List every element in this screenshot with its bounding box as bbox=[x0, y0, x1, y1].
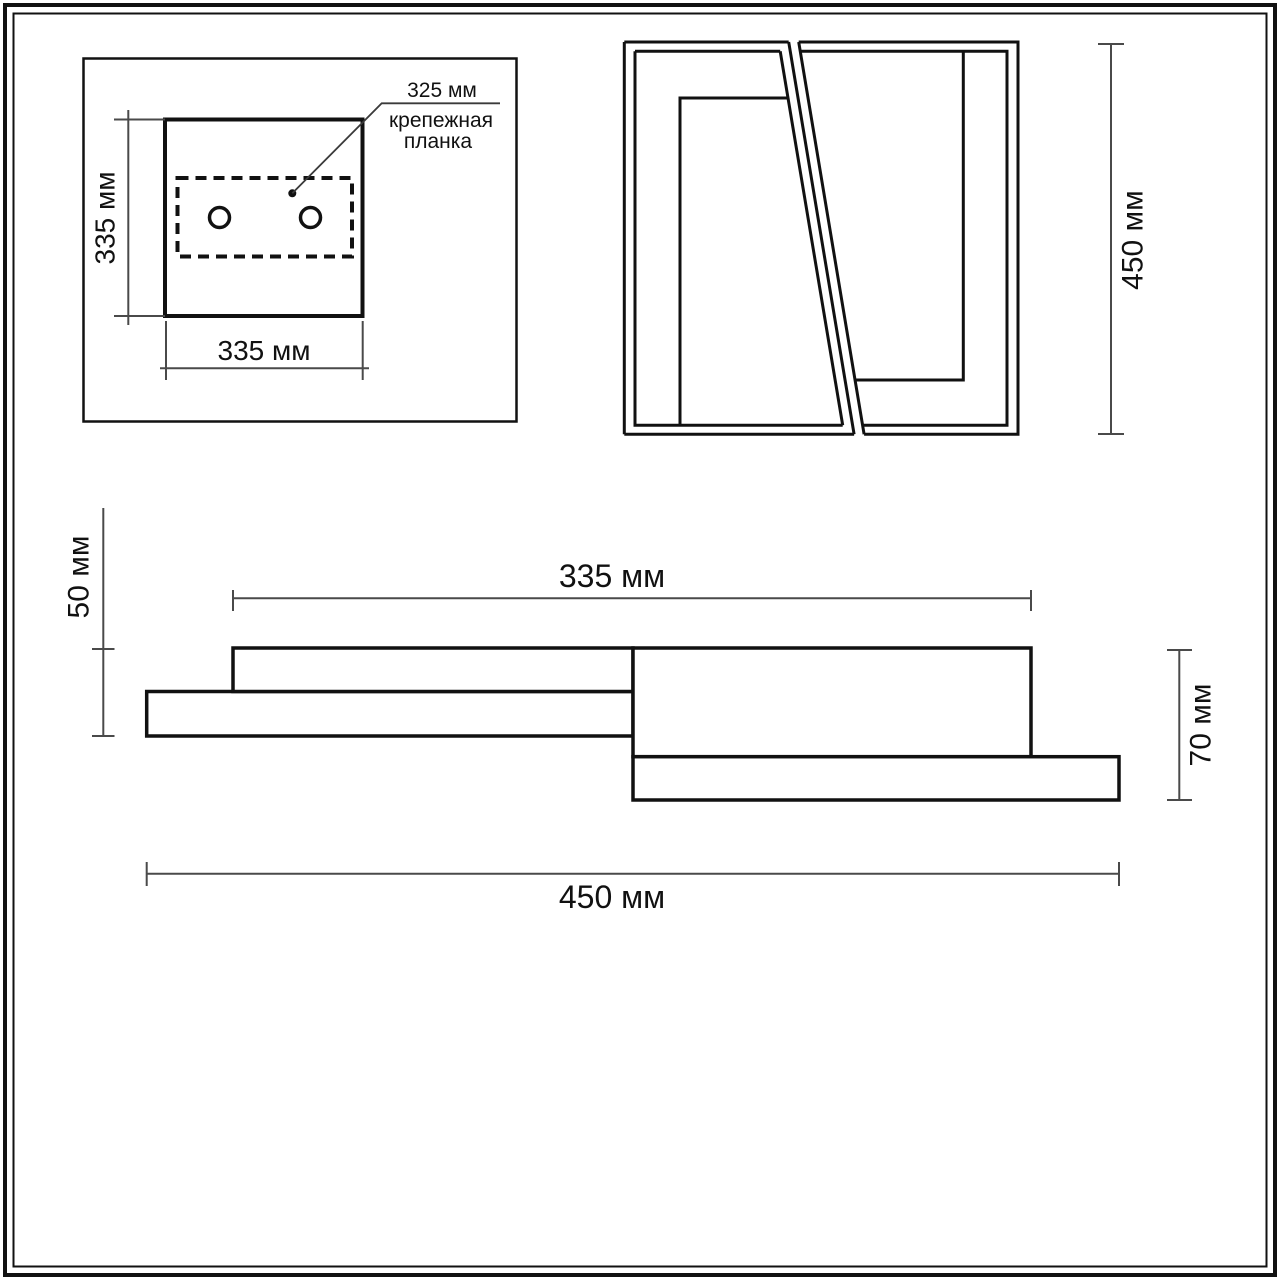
front-right-frame-opening bbox=[855, 51, 963, 380]
side-top-width-dimension: 335 мм bbox=[233, 558, 1031, 611]
front-view: 450 мм bbox=[624, 42, 1149, 434]
front-diagonal-line-2 bbox=[789, 42, 854, 434]
side-view: 50 мм 335 мм 450 мм 70 мм bbox=[63, 508, 1218, 915]
side-lower-bar bbox=[633, 757, 1119, 800]
mounting-hole-left bbox=[210, 208, 230, 228]
plan-width-dimension: 335 мм bbox=[160, 321, 369, 380]
fixture-body-square bbox=[165, 120, 363, 317]
side-left-bar bbox=[147, 692, 633, 737]
front-height-label: 450 мм bbox=[1117, 190, 1150, 290]
side-left-height-label: 50 мм bbox=[63, 536, 96, 619]
front-diagonal-line-3 bbox=[799, 42, 864, 434]
callout-name-line2: планка bbox=[404, 130, 473, 153]
callout-name-line1: крепежная bbox=[389, 109, 493, 132]
side-top-width-label: 335 мм bbox=[559, 558, 665, 594]
front-height-dimension: 450 мм bbox=[1098, 44, 1150, 434]
drawing-svg: 325 мм крепежная планка 335 мм 335 мм bbox=[0, 0, 1280, 1280]
callout-dim-label: 325 мм bbox=[407, 79, 477, 102]
side-right-block bbox=[633, 648, 1031, 757]
side-top-bar bbox=[233, 648, 633, 692]
side-right-height-label: 70 мм bbox=[1185, 684, 1218, 767]
page-frame bbox=[5, 5, 1275, 1275]
mounting-plate-dashed-outline bbox=[178, 178, 353, 257]
side-left-height-dimension: 50 мм bbox=[63, 508, 115, 736]
plan-width-label: 335 мм bbox=[218, 335, 311, 366]
plan-height-label: 335 мм bbox=[90, 172, 121, 265]
page-frame-inner bbox=[14, 14, 1267, 1267]
plan-height-dimension: 335 мм bbox=[90, 110, 166, 325]
front-left-frame-opening bbox=[680, 98, 788, 425]
plan-view: 325 мм крепежная планка 335 мм 335 мм bbox=[84, 59, 517, 422]
technical-drawing-page: 325 мм крепежная планка 335 мм 335 мм bbox=[0, 0, 1280, 1280]
side-bottom-width-dimension: 450 мм bbox=[147, 862, 1119, 915]
page-frame-outer bbox=[5, 5, 1275, 1275]
front-diagonal-line-1 bbox=[780, 51, 843, 425]
side-right-height-dimension: 70 мм bbox=[1167, 650, 1218, 800]
side-bottom-width-label: 450 мм bbox=[559, 879, 665, 915]
mounting-hole-right bbox=[301, 208, 321, 228]
